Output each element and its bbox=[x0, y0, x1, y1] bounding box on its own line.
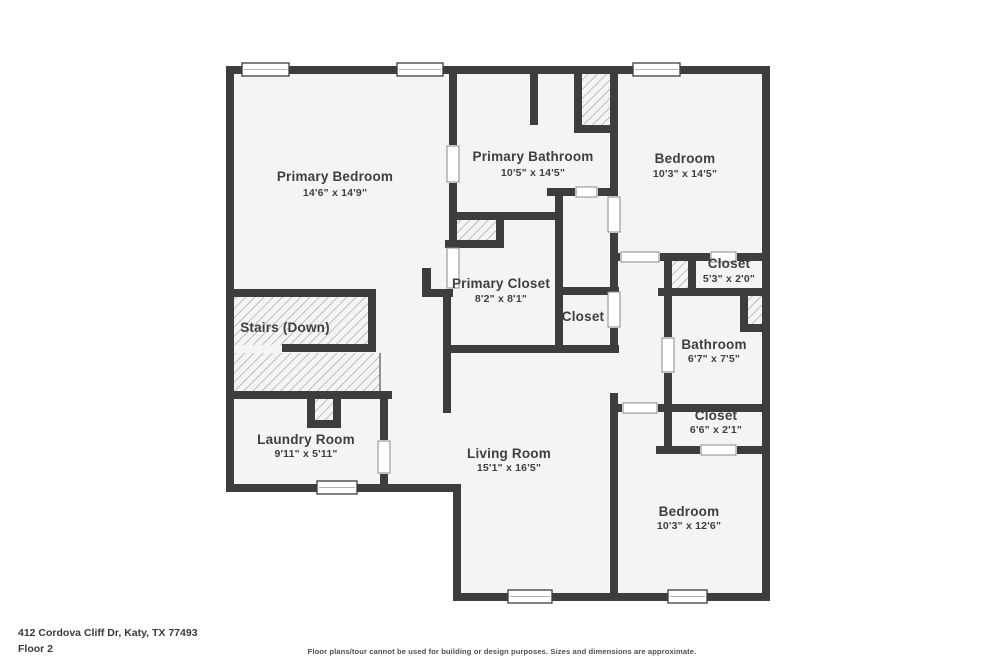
door bbox=[701, 445, 736, 455]
room-dims-laundry: 9'11" x 5'11" bbox=[274, 448, 337, 460]
room-label-bedroom-bottom: Bedroom bbox=[659, 504, 720, 519]
room-label-bathroom: Bathroom bbox=[681, 337, 746, 352]
room-label-closet-bottom: Closet bbox=[695, 408, 738, 423]
room-label-primary-closet: Primary Closet bbox=[452, 276, 550, 291]
room-dims-primary-closet: 8'2" x 8'1" bbox=[475, 293, 527, 305]
door bbox=[621, 252, 659, 262]
floor-plan-canvas: Primary Bedroom 14'6" x 14'9" Primary Ba… bbox=[0, 0, 1000, 667]
closet-niche-hatch bbox=[453, 220, 496, 240]
door bbox=[576, 187, 597, 197]
primary-shower-hatch bbox=[582, 74, 610, 125]
footer-floor-label: Floor 2 bbox=[18, 643, 53, 655]
room-dims-bedroom-top: 10'3" x 14'5" bbox=[653, 168, 717, 180]
room-dims-primary-bedroom: 14'6" x 14'9" bbox=[303, 187, 367, 199]
room-label-bedroom-top: Bedroom bbox=[655, 151, 716, 166]
door bbox=[447, 146, 459, 182]
room-dims-closet-hall: 5'3" x 2'0" bbox=[703, 273, 755, 285]
room-dims-bedroom-bottom: 10'3" x 12'6" bbox=[657, 520, 721, 532]
room-dims-bathroom: 6'7" x 7'5" bbox=[688, 353, 740, 365]
stairs-hatch-lower bbox=[234, 353, 380, 391]
door bbox=[608, 292, 620, 327]
footer: 412 Cordova Cliff Dr, Katy, TX 77493 Flo… bbox=[18, 627, 696, 656]
laundry-niche-hatch bbox=[315, 399, 333, 422]
room-label-living-room: Living Room bbox=[467, 446, 551, 461]
door bbox=[378, 441, 390, 473]
door bbox=[608, 197, 620, 232]
room-dims-primary-bathroom: 10'5" x 14'5" bbox=[501, 167, 565, 179]
bathroom-shower-hatch bbox=[748, 296, 762, 324]
room-dims-closet-bottom: 6'6" x 2'1" bbox=[690, 424, 742, 436]
room-label-laundry: Laundry Room bbox=[257, 432, 355, 447]
room-label-stairs: Stairs (Down) bbox=[240, 320, 330, 335]
footer-disclaimer: Floor plans/tour cannot be used for buil… bbox=[308, 647, 697, 656]
room-label-closet-middle: Closet bbox=[562, 309, 605, 324]
room-label-primary-bathroom: Primary Bathroom bbox=[473, 149, 594, 164]
footer-address: 412 Cordova Cliff Dr, Katy, TX 77493 bbox=[18, 627, 198, 639]
floor-plan-page: Primary Bedroom 14'6" x 14'9" Primary Ba… bbox=[0, 0, 1000, 667]
room-dims-living-room: 15'1" x 16'5" bbox=[477, 462, 541, 474]
hall-closet-hatch bbox=[672, 261, 688, 288]
room-label-closet-hall: Closet bbox=[708, 256, 751, 271]
room-label-primary-bedroom: Primary Bedroom bbox=[277, 169, 393, 184]
door bbox=[662, 338, 674, 372]
door bbox=[623, 403, 657, 413]
